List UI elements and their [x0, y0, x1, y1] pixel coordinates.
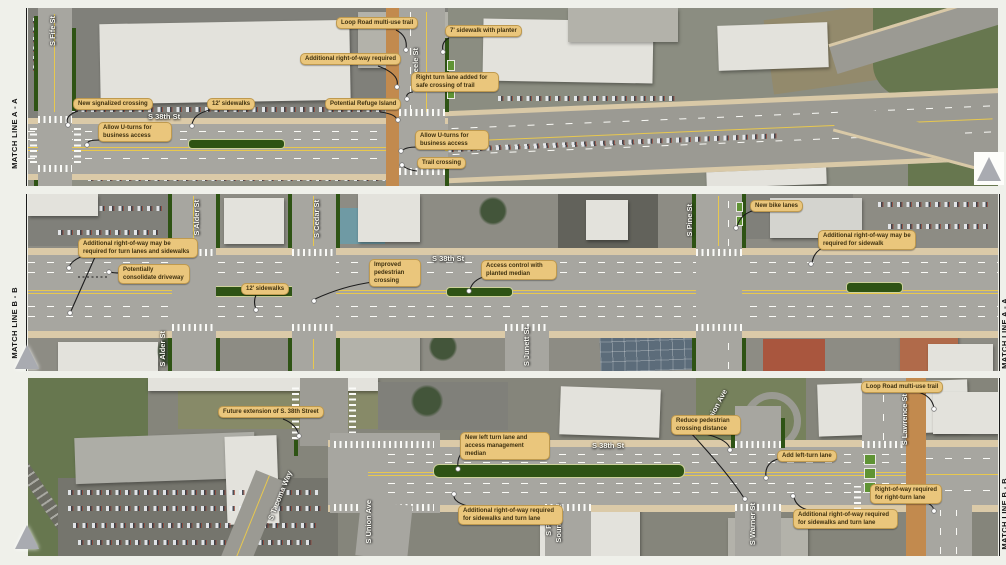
bike-lane-marking [736, 216, 743, 226]
parked-cars [888, 224, 988, 229]
building-roof [28, 194, 98, 216]
north-arrow-icon [977, 157, 1001, 181]
callout: 7' sidewalk with planter [445, 25, 522, 37]
callout: Future extension of S. 38th Street [218, 406, 324, 418]
callout: Allow U-turns for business access [98, 122, 172, 142]
callout: New signalized crossing [73, 98, 153, 110]
crosswalk [38, 116, 72, 123]
building-roof [763, 339, 825, 371]
callout: 12' sidewalks [207, 98, 255, 110]
match-line-label-top-left: MATCH LINE A - A [10, 98, 19, 169]
street-label-union-s: S Union Ave [364, 500, 373, 544]
match-line-label-mid-right: MATCH LINE A - A [1000, 298, 1006, 369]
callout: Additional right-of-way may be required … [78, 238, 198, 258]
match-line-label-bottom-right: MATCH LINE B - B [1000, 478, 1006, 550]
street-label-pine: S Pine St [685, 204, 694, 237]
crosswalk [399, 109, 445, 116]
crosswalk [172, 324, 216, 331]
street-label-38th: S 38th St [148, 112, 180, 121]
building-roof [568, 8, 678, 42]
building-roof [559, 386, 661, 437]
callout: Allow U-turns for business access [415, 130, 489, 150]
access-management-median [433, 464, 685, 478]
loop-road-trail [386, 8, 399, 186]
callout: Add left-turn lane [777, 450, 837, 462]
street-label-alder-n: S Alder St [192, 200, 201, 236]
panel-top: S Fife St S 38th St S Steele St [28, 8, 998, 186]
building-roof [358, 194, 420, 242]
callout: Potential Refuge Island [325, 98, 401, 110]
parked-cars [78, 540, 313, 545]
street-label-lawrence: S Lawrence St [900, 394, 909, 445]
crosswalk [696, 249, 742, 256]
crosswalk [735, 504, 781, 511]
trees [410, 384, 444, 418]
parked-cars [498, 96, 678, 101]
match-line-edge [26, 8, 27, 186]
callout: Additional right-of-way required [300, 53, 401, 65]
callout: 12' sidewalks [241, 283, 289, 295]
street-label-warner: S Warner St [748, 503, 757, 545]
callout: Additional right-of-way required for sid… [458, 505, 563, 525]
crosswalk [30, 127, 37, 163]
crosswalk [349, 384, 356, 439]
north-arrow-icon [15, 345, 39, 369]
callout: Trail crossing [417, 157, 466, 169]
building-roof [928, 344, 993, 371]
callout: Right turn lane added for safe crossing … [411, 72, 499, 92]
bike-lane-marking [447, 60, 455, 71]
callout: Right-of-way required for right-turn lan… [870, 484, 942, 504]
street-label-fife: S Fife St [48, 16, 57, 46]
callout: Additional right-of-way may be required … [818, 230, 916, 250]
street-label-alder-s: S Alder St [158, 331, 167, 367]
crosswalk [399, 168, 445, 175]
parked-cars [878, 202, 988, 207]
callout: Loop Road multi-use trail [861, 381, 943, 393]
crosswalk [38, 165, 72, 172]
callout: Potentially consolidate driveway [118, 264, 190, 284]
callout: Improved pedestrian crossing [369, 259, 421, 287]
callout: New bike lanes [750, 200, 803, 212]
callout: Loop Road multi-use trail [336, 17, 418, 29]
callout: Reduce pedestrian crossing distance [671, 415, 741, 435]
street-label-38th: S 38th St [592, 441, 624, 450]
crosswalk [292, 324, 336, 331]
building-roof [58, 342, 158, 371]
building-roof [933, 392, 998, 434]
crosswalk [735, 441, 781, 448]
building-roof [586, 200, 628, 240]
street-label-cedar: S Cedar St [312, 200, 321, 238]
planted-median [446, 287, 513, 297]
planted-median [846, 282, 903, 293]
callout: Access control with planted median [481, 260, 557, 280]
crosswalk [292, 249, 336, 256]
crosswalk [696, 324, 742, 331]
lawrence-st-south-approach [926, 505, 972, 556]
building-roof [717, 22, 829, 71]
corridor-plan-sheet: S Fife St S 38th St S Steele St [0, 0, 1006, 565]
parked-cars [68, 506, 323, 511]
bike-lane-marking [864, 454, 876, 465]
loop-road-trail [906, 378, 926, 556]
street-label-38th: S 38th St [432, 254, 464, 263]
parked-cars [73, 523, 318, 528]
warner-st-roadway [735, 504, 781, 556]
callout: Additional right-of-way required for sid… [793, 509, 898, 529]
north-arrow-icon [15, 525, 39, 549]
panel-middle: S Alder St S Alder St S Cedar St S 38th … [28, 194, 998, 371]
trees [478, 196, 508, 226]
street-label-junett: S Junett St [522, 327, 531, 366]
parked-cars [58, 230, 158, 235]
bike-lane-marking [864, 468, 876, 479]
building-roof [224, 198, 284, 244]
crosswalk [74, 127, 81, 163]
callout: New left turn lane and access management… [460, 432, 550, 460]
planted-median [188, 139, 285, 149]
bike-lane-marking [736, 202, 743, 212]
crosswalk [334, 441, 434, 448]
panel-bottom: S Tacoma Way S Union Ave S 38th St S Pug… [28, 378, 998, 556]
